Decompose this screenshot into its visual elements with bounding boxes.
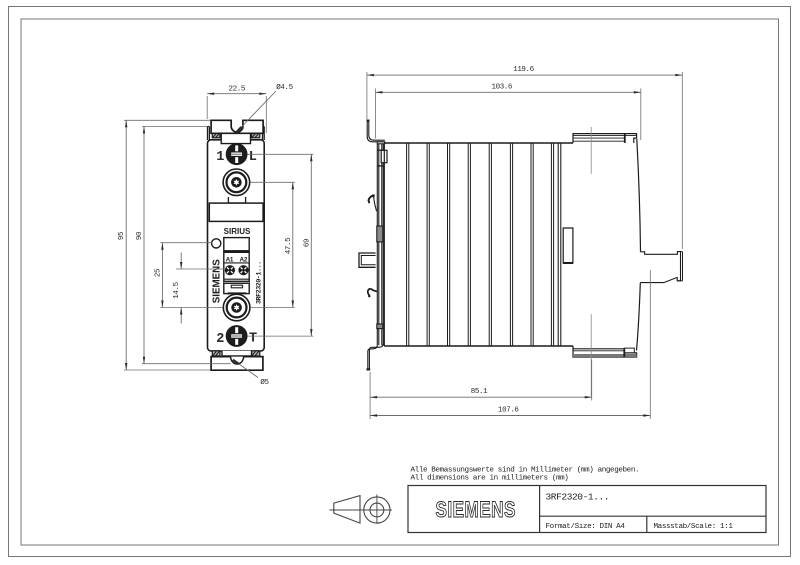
svg-text:25: 25 <box>154 268 162 277</box>
svg-text:14.5: 14.5 <box>173 281 181 298</box>
svg-text:85.1: 85.1 <box>471 388 488 396</box>
svg-text:Ø5: Ø5 <box>260 378 269 387</box>
svg-text:47.5: 47.5 <box>285 237 293 254</box>
svg-text:2: 2 <box>216 332 224 347</box>
svg-text:1: 1 <box>216 150 224 165</box>
svg-text:22.5: 22.5 <box>229 86 246 94</box>
svg-text:All dimensions are in millimet: All dimensions are in millimeters (mm) <box>411 475 569 483</box>
svg-text:Alle Bemassungswerte sind in M: Alle Bemassungswerte sind in Millimeter … <box>411 467 640 475</box>
svg-text:69: 69 <box>303 239 311 247</box>
svg-text:L: L <box>249 150 257 165</box>
svg-text:SIRIUS: SIRIUS <box>224 227 251 236</box>
svg-text:90: 90 <box>136 231 144 240</box>
svg-text:95: 95 <box>118 231 126 240</box>
svg-text:3RF2320-1...: 3RF2320-1... <box>546 492 610 503</box>
svg-text:3RF2320-1...: 3RF2320-1... <box>256 261 263 304</box>
svg-text:T: T <box>249 332 257 347</box>
svg-text:Format/Size: DIN A4: Format/Size: DIN A4 <box>546 523 626 531</box>
svg-text:107.6: 107.6 <box>498 407 519 415</box>
svg-text:103.6: 103.6 <box>492 83 513 91</box>
svg-text:SIEMENS: SIEMENS <box>435 498 515 523</box>
svg-text:Massstab/Scale: 1:1: Massstab/Scale: 1:1 <box>654 523 734 531</box>
svg-text:SIEMENS: SIEMENS <box>212 259 223 304</box>
svg-text:119.6: 119.6 <box>513 66 534 74</box>
svg-text:Ø4.5: Ø4.5 <box>276 83 293 92</box>
